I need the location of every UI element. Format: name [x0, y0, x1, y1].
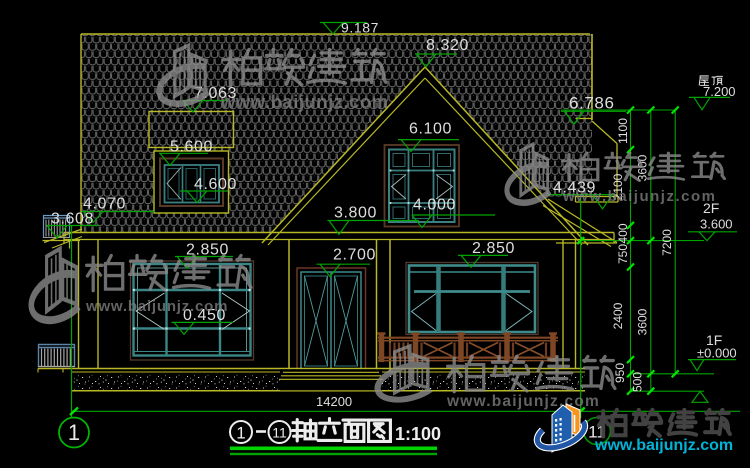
svg-text:3600: 3600	[636, 308, 650, 335]
svg-text:8.320: 8.320	[426, 37, 469, 54]
svg-text:500: 500	[631, 372, 645, 392]
svg-text:www.baijunjz.com: www.baijunjz.com	[446, 393, 600, 410]
svg-text:www.baijunjz.com: www.baijunjz.com	[562, 188, 716, 205]
svg-text:1:100: 1:100	[395, 424, 441, 444]
svg-text:2400: 2400	[611, 302, 625, 329]
svg-text:www.baijunjz.com: www.baijunjz.com	[594, 437, 733, 454]
svg-text:3.600: 3.600	[700, 217, 733, 232]
svg-text:5.600: 5.600	[170, 139, 213, 156]
svg-text:7.200: 7.200	[703, 84, 736, 99]
svg-text:3.608: 3.608	[51, 211, 94, 228]
svg-text:1F: 1F	[706, 332, 722, 348]
svg-text:www.baijunjz.com: www.baijunjz.com	[85, 298, 228, 315]
svg-text:11: 11	[272, 425, 287, 441]
svg-text:1: 1	[236, 424, 245, 443]
svg-text:950: 950	[613, 363, 627, 383]
svg-text:2.700: 2.700	[333, 247, 376, 264]
svg-text:4.000: 4.000	[413, 197, 456, 214]
svg-text:7200: 7200	[660, 229, 674, 256]
svg-text:14200: 14200	[316, 394, 352, 409]
svg-text:2.850: 2.850	[472, 240, 515, 257]
svg-text:1100: 1100	[616, 118, 630, 144]
svg-text:6.100: 6.100	[409, 121, 452, 138]
svg-text:www.baijunjz.com: www.baijunjz.com	[220, 91, 389, 112]
svg-text:9.187: 9.187	[341, 20, 379, 36]
svg-text:4.600: 4.600	[194, 176, 237, 193]
svg-text:400: 400	[616, 223, 630, 243]
svg-text:750: 750	[616, 244, 630, 264]
svg-text:3.800: 3.800	[334, 205, 377, 222]
svg-text:1: 1	[68, 420, 80, 445]
